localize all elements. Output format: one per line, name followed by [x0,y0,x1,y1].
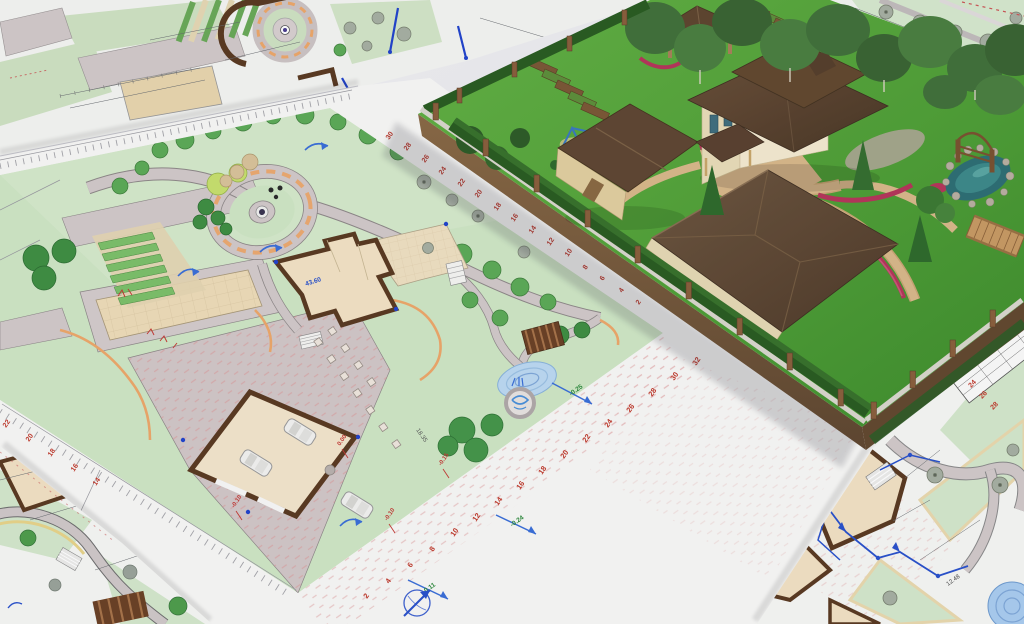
landscape-design-drawing: 2 4 6 8 10 12 14 16 18 20 22 24 26 28 30… [0,0,1024,624]
vignette [0,0,1024,624]
screenshot: 2 4 6 8 10 12 14 16 18 20 22 24 26 28 30… [0,0,1024,624]
